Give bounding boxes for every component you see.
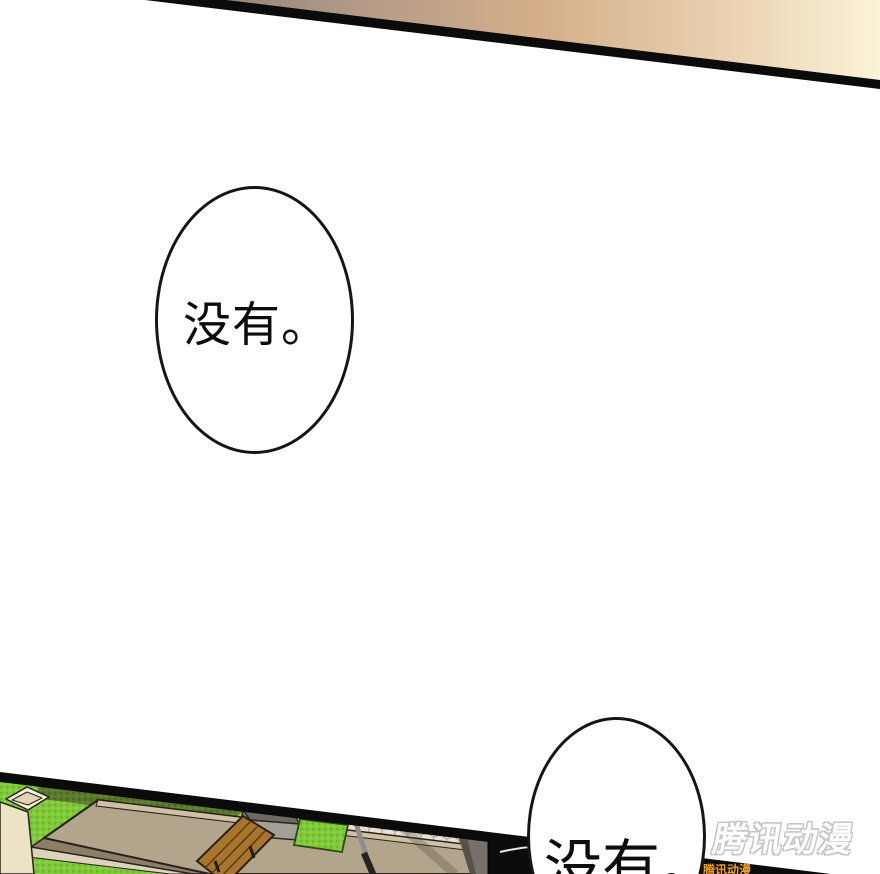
scene-grass-patch [294,819,348,852]
top-panel [0,0,880,100]
speech-bubble-2-text: 没有。 [530,720,718,874]
tencent-comics-watermark: 腾讯动漫 [710,812,859,861]
speech-bubble-2: 没有。 [527,717,706,874]
comic-page: 没有。 没有。 腾讯动漫 腾讯动漫 [0,0,880,874]
watermark-orange-fragment: 腾讯动漫 [703,861,751,874]
speech-bubble-1: 没有。 [155,186,354,454]
speech-bubble-1-text: 没有。 [179,285,330,355]
